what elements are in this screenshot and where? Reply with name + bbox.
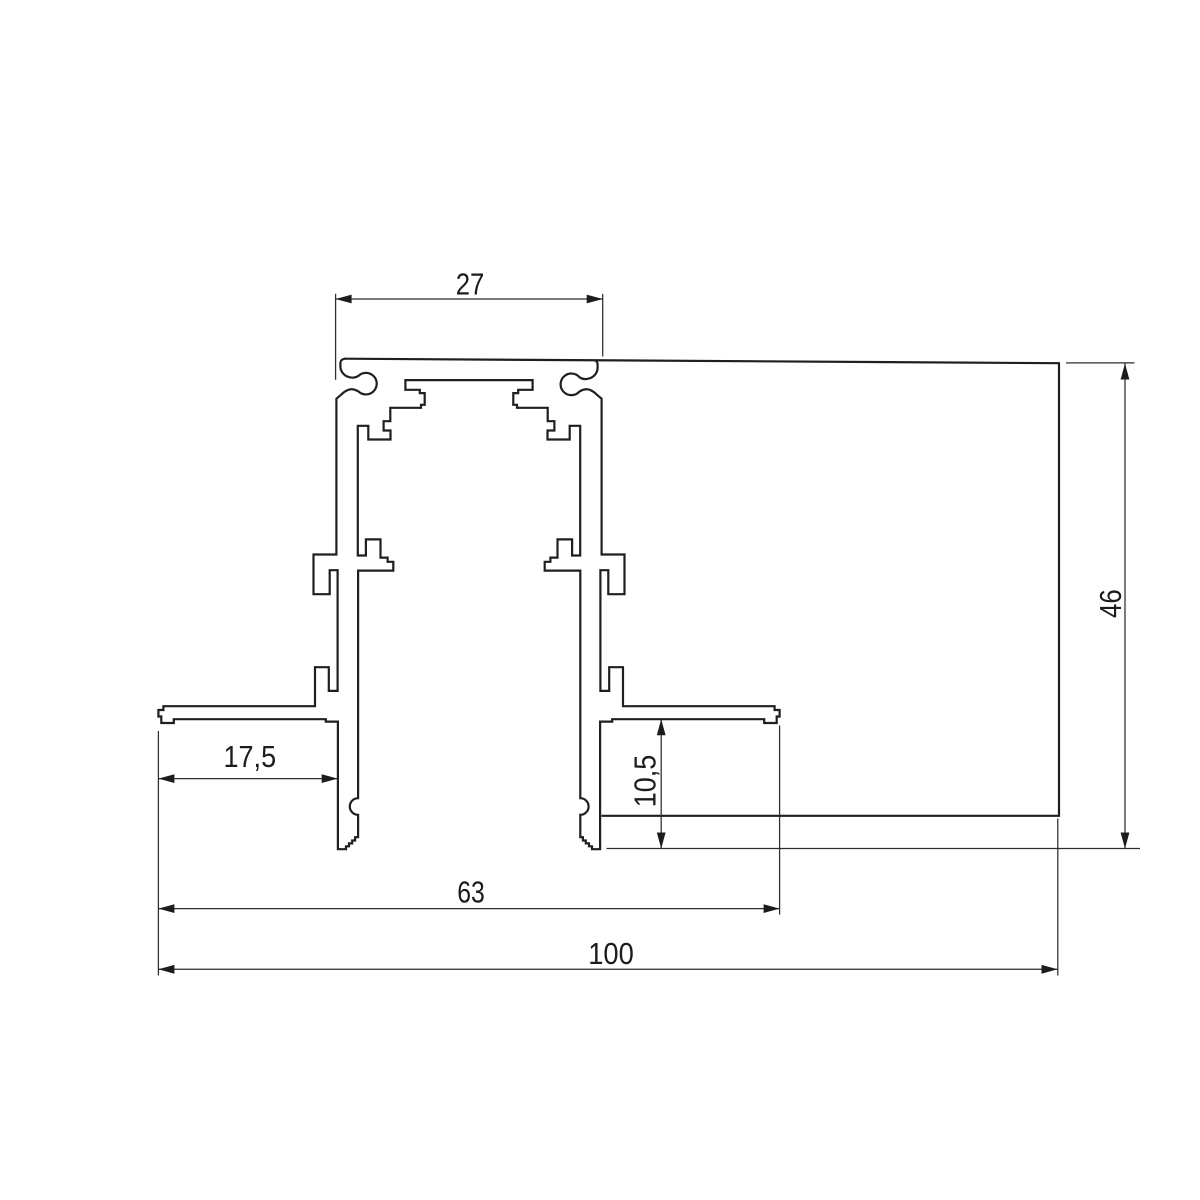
svg-text:17,5: 17,5 [224,739,277,774]
svg-text:100: 100 [588,936,634,971]
svg-text:63: 63 [457,875,485,910]
svg-text:10,5: 10,5 [628,755,663,808]
svg-text:46: 46 [1093,589,1128,618]
svg-text:27: 27 [456,267,485,302]
